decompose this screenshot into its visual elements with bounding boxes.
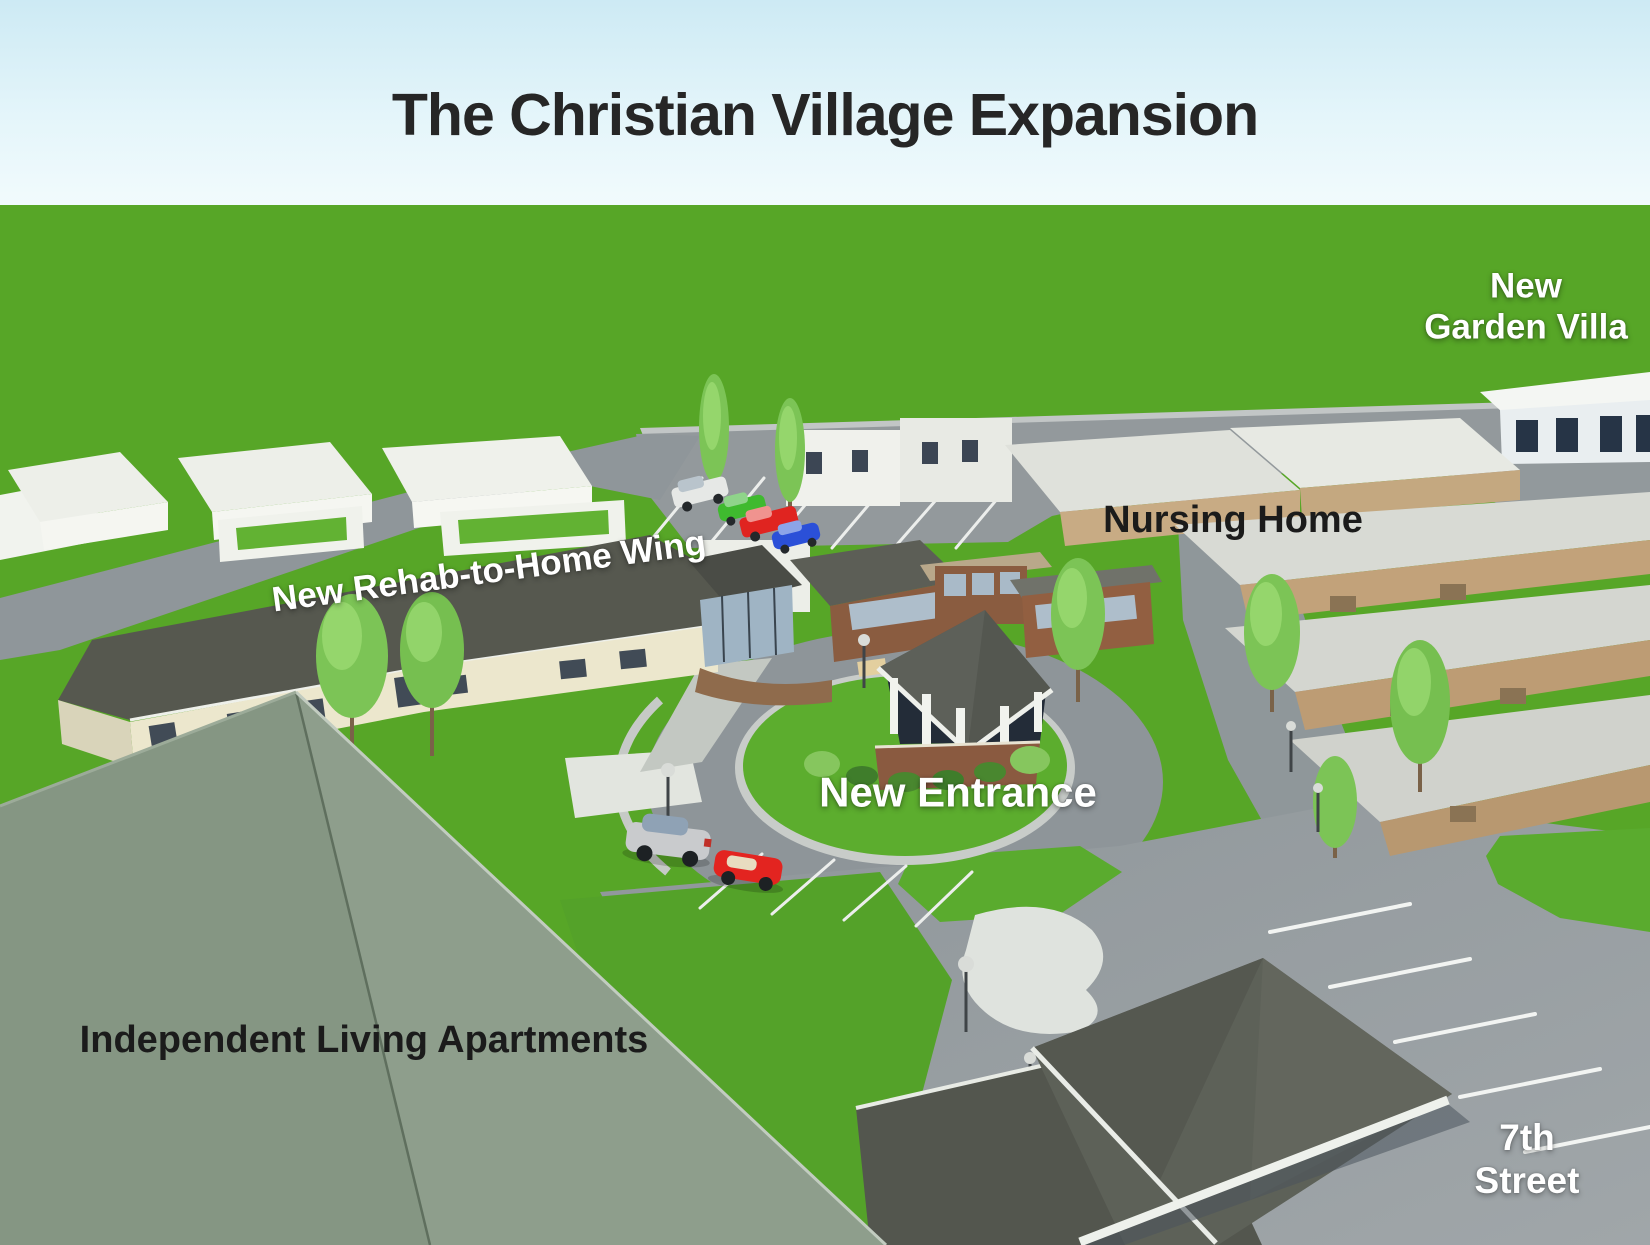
label-garden-villa-line1: New [1424, 266, 1628, 307]
label-garden-villa: New Garden Villa [1424, 266, 1628, 347]
page-title: The Christian Village Expansion [392, 81, 1258, 149]
label-nursing-home: Nursing Home [1103, 498, 1363, 542]
rear-buildings [786, 418, 1012, 506]
label-new-entrance: New Entrance [819, 769, 1097, 818]
label-7th-street: 7th Street [1475, 1117, 1580, 1203]
label-7th-street-line2: Street [1475, 1160, 1580, 1203]
label-7th-street-line1: 7th [1475, 1117, 1580, 1160]
label-independent-living: Independent Living Apartments [80, 1018, 649, 1062]
label-garden-villa-line2: Garden Villa [1424, 307, 1628, 348]
site-plan-rendering: The Christian Village Expansion New Gard… [0, 0, 1650, 1245]
